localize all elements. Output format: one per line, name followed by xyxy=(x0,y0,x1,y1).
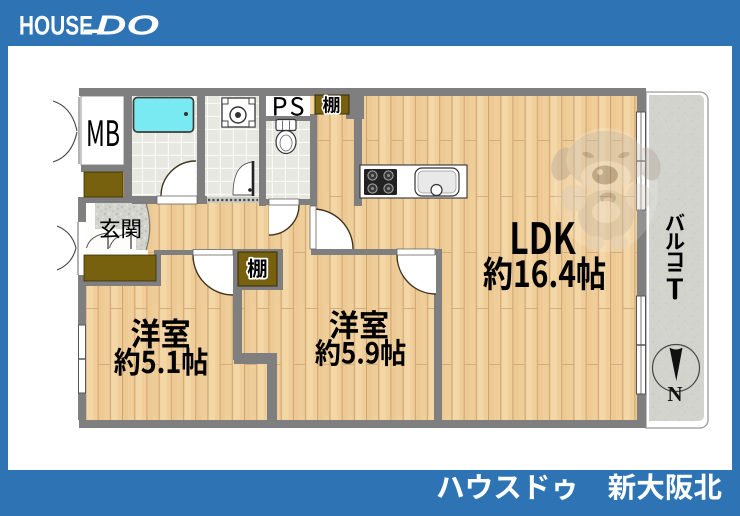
svg-text:HOUSE: HOUSE xyxy=(19,11,93,41)
svg-text:N: N xyxy=(667,382,682,406)
svg-text:DO: DO xyxy=(96,10,159,41)
